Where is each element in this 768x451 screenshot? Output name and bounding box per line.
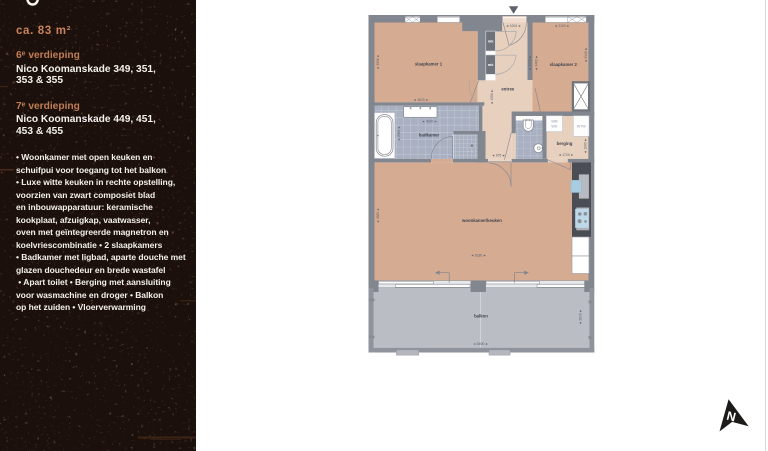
svg-text:◄ 1055 ►: ◄ 1055 ► [490,89,494,105]
svg-text:◄ 3460 ►: ◄ 3460 ► [534,55,538,71]
svg-text:◄ 6320 ►: ◄ 6320 ► [471,254,487,258]
svg-text:◄ 2630 ►: ◄ 2630 ► [579,309,583,325]
svg-text:◄ 4020 ►: ◄ 4020 ► [422,119,438,123]
svg-text:◄ 8600 ►: ◄ 8600 ► [473,342,489,346]
svg-text:◄ 1720 ►: ◄ 1720 ► [558,153,574,157]
svg-text:mk: mk [488,62,494,67]
svg-text:◄ 4020 ►: ◄ 4020 ► [413,98,429,102]
svg-text:badkamer: badkamer [419,133,440,138]
svg-text:entree: entree [501,86,515,91]
svg-text:WTW: WTW [577,124,587,128]
svg-text:WM: WM [551,120,557,124]
svg-text:◄ 2340 ►: ◄ 2340 ► [584,47,588,63]
svg-text:◄ 2060 ►: ◄ 2060 ► [397,126,401,142]
svg-text:WD: WD [551,125,557,129]
svg-text:slaapkamer 1: slaapkamer 1 [415,61,443,66]
svg-text:woonkamer/keuken: woonkamer/keuken [461,218,502,223]
svg-text:◄ 1004 ►: ◄ 1004 ► [506,24,522,28]
svg-text:◄ 3008 ►: ◄ 3008 ► [376,54,380,70]
svg-text:◄ 3430 ►: ◄ 3430 ► [528,55,532,71]
svg-text:slaapkamer 2: slaapkamer 2 [550,62,578,67]
svg-text:mk: mk [488,39,494,44]
svg-text:◄ 2100 ►: ◄ 2100 ► [554,24,570,28]
svg-text:◄ 975 ►: ◄ 975 ► [492,153,506,157]
svg-text:◄ 4580 ►: ◄ 4580 ► [376,208,380,224]
svg-text:berging: berging [557,141,573,146]
svg-text:◄ 1900 ►: ◄ 1900 ► [583,138,587,154]
svg-text:balkon: balkon [474,313,488,318]
